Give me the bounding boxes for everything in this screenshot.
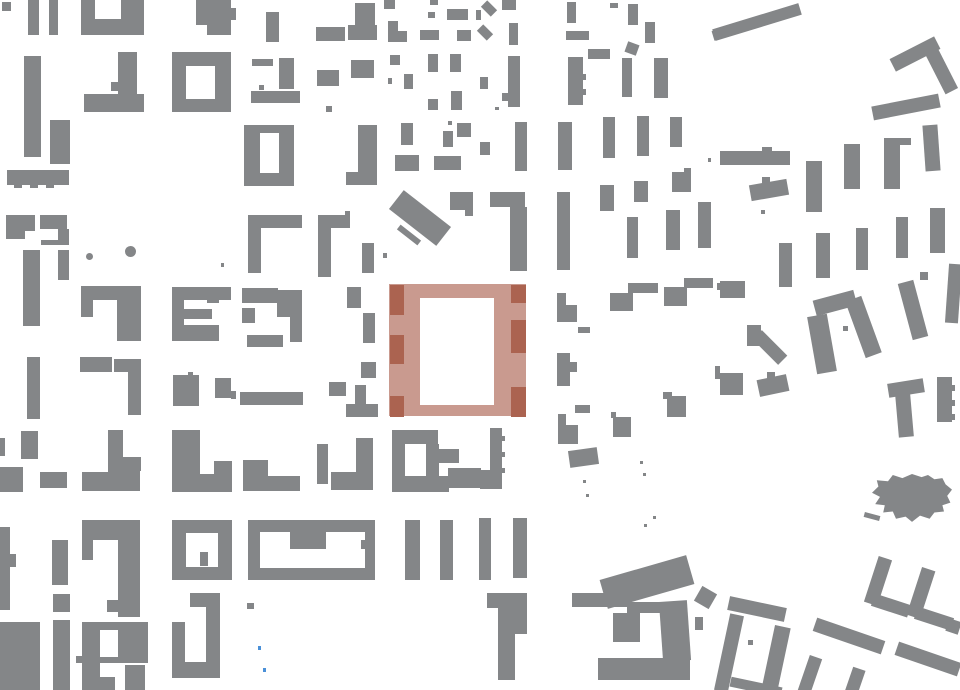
building-footprint [558, 414, 566, 425]
building-footprint [513, 518, 527, 578]
building-footprint [383, 253, 387, 258]
building-footprint [244, 173, 294, 186]
building-footprint [598, 658, 690, 680]
building-footprint [578, 327, 590, 333]
building-footprint [196, 0, 231, 25]
site-dark-block [511, 387, 526, 417]
building-footprint [231, 391, 236, 399]
building-footprint [644, 524, 647, 527]
building-footprint [509, 23, 518, 45]
building-footprint [395, 155, 419, 171]
building-footprint [251, 91, 300, 103]
building-footprint [567, 2, 576, 23]
building-footprint [172, 622, 185, 662]
building-footprint [317, 444, 328, 484]
building-footprint [14, 185, 22, 188]
building-footprint [945, 618, 960, 634]
building-footprint [952, 400, 955, 406]
building-footprint [557, 353, 570, 386]
building-footprint [922, 125, 940, 172]
building-footprint [515, 122, 527, 171]
building-footprint [318, 215, 350, 228]
building-footprint [440, 520, 453, 580]
building-footprint [434, 156, 461, 170]
building-footprint [392, 476, 449, 492]
building-footprint [231, 8, 236, 20]
map-marker-dot [258, 646, 261, 650]
building-footprint [351, 60, 374, 78]
building-footprint [392, 430, 438, 444]
building-footprint [81, 300, 93, 317]
building-footprint [570, 362, 577, 372]
building-footprint [807, 314, 837, 375]
building-footprint [477, 24, 493, 40]
building-footprint [266, 12, 279, 42]
building-footprint [844, 144, 860, 189]
building-footprint [720, 151, 790, 165]
building-footprint [23, 250, 40, 326]
building-footprint [502, 436, 505, 441]
building-footprint [76, 656, 82, 663]
building-footprint [443, 131, 453, 147]
site-dark-block [511, 285, 526, 303]
building-footprint [252, 59, 273, 66]
building-footprint [401, 123, 413, 145]
building-footprint [188, 372, 193, 375]
map-marker-dot [263, 668, 266, 672]
building-footprint [28, 0, 39, 35]
building-footprint [117, 300, 141, 341]
building-footprint [457, 30, 471, 41]
building-footprint [53, 594, 70, 612]
building-footprint [0, 527, 10, 610]
building-footprint [508, 56, 520, 107]
building-footprint [172, 300, 184, 341]
building-footprint [430, 0, 438, 5]
building-footprint [361, 540, 366, 549]
building-footprint [628, 283, 658, 293]
building-footprint [259, 85, 264, 90]
building-footprint [856, 228, 868, 270]
site-courtyard [420, 298, 494, 405]
building-footprint [52, 540, 68, 585]
building-footprint [761, 210, 765, 214]
building-footprint [41, 240, 69, 245]
building-footprint [242, 288, 278, 303]
building-footprint [588, 49, 610, 59]
building-footprint [481, 0, 497, 16]
round-building [125, 246, 136, 257]
building-footprint [465, 210, 473, 216]
building-footprint [356, 438, 373, 490]
building-footprint [107, 600, 118, 612]
building-footprint [46, 185, 54, 188]
building-footprint [279, 58, 294, 89]
building-footprint [610, 3, 618, 8]
building-footprint [476, 10, 481, 20]
building-footprint [937, 377, 952, 422]
building-footprint [242, 308, 255, 323]
building-footprint [843, 326, 848, 331]
building-footprint [557, 293, 566, 305]
building-footprint [557, 305, 577, 322]
building-footprint [653, 516, 656, 519]
building-footprint [568, 447, 599, 468]
building-footprint [243, 460, 268, 477]
building-footprint [6, 231, 25, 239]
building-footprint [81, 19, 144, 35]
building-footprint [347, 287, 361, 308]
building-footprint [172, 430, 200, 492]
building-footprint [895, 393, 914, 437]
building-footprint [654, 58, 668, 98]
building-footprint [207, 25, 231, 35]
building-footprint [118, 540, 140, 617]
building-footprint [447, 9, 468, 20]
building-footprint [922, 42, 958, 95]
building-footprint [428, 12, 435, 18]
building-footprint [659, 600, 691, 662]
building-footprint [720, 373, 743, 395]
building-footprint [111, 82, 120, 91]
building-footprint [207, 298, 219, 303]
building-footprint [695, 617, 703, 630]
building-footprint [450, 192, 473, 210]
building-footprint [762, 147, 772, 152]
building-footprint [895, 642, 960, 677]
building-footprint [448, 468, 481, 488]
building-footprint [184, 325, 219, 341]
building-footprint [277, 290, 302, 317]
building-footprint [664, 287, 687, 306]
building-footprint [439, 449, 459, 463]
building-footprint [900, 138, 911, 145]
building-footprint [348, 25, 377, 40]
building-footprint [244, 133, 260, 173]
building-footprint [244, 125, 294, 133]
building-footprint [329, 382, 346, 396]
building-footprint [316, 27, 345, 41]
building-footprint [480, 142, 490, 155]
building-footprint [326, 106, 332, 112]
building-footprint [670, 117, 682, 147]
building-footprint [600, 185, 614, 211]
building-footprint [634, 181, 648, 202]
building-footprint [123, 462, 140, 473]
building-footprint [753, 330, 788, 365]
building-footprint [247, 335, 283, 347]
building-footprint [694, 586, 717, 609]
building-footprint [358, 125, 377, 185]
building-footprint [331, 472, 357, 490]
building-footprint [128, 372, 141, 415]
building-footprint [172, 287, 231, 300]
building-footprint [575, 405, 590, 413]
building-footprint [172, 662, 207, 678]
building-footprint [214, 461, 232, 475]
building-footprint [363, 313, 375, 343]
building-footprint [345, 211, 350, 215]
building-footprint [355, 3, 375, 25]
building-footprint [82, 540, 93, 560]
building-footprint [568, 57, 583, 105]
building-footprint [82, 520, 140, 540]
building-footprint [0, 467, 23, 492]
building-footprint [952, 414, 955, 420]
building-footprint [388, 31, 407, 42]
building-footprint [797, 655, 822, 690]
building-footprint [428, 99, 438, 110]
building-footprint [317, 70, 339, 86]
building-footprint [248, 215, 302, 228]
site-dark-block [390, 396, 404, 417]
building-footprint [118, 52, 137, 94]
building-footprint [952, 385, 955, 391]
building-footprint [184, 309, 212, 319]
building-footprint [498, 634, 515, 680]
building-footprint [871, 94, 940, 121]
building-footprint [816, 233, 830, 278]
building-footprint [930, 208, 945, 253]
building-footprint [420, 30, 439, 40]
building-footprint [843, 667, 865, 690]
building-footprint [640, 461, 643, 464]
building-footprint [586, 494, 589, 497]
building-footprint [172, 520, 232, 533]
building-footprint [243, 476, 300, 491]
building-footprint [645, 22, 655, 43]
building-footprint [761, 625, 790, 690]
building-footprint [498, 607, 527, 634]
building-footprint [622, 58, 632, 97]
building-footprint [748, 640, 753, 645]
building-footprint [566, 31, 589, 40]
building-footprint [426, 444, 439, 477]
building-footprint [457, 123, 471, 137]
building-footprint [361, 362, 376, 378]
building-footprint [240, 392, 303, 405]
building-footprint [53, 620, 70, 690]
building-footprint [558, 425, 578, 444]
building-footprint [684, 278, 713, 288]
building-footprint [490, 192, 525, 207]
building-footprint [720, 281, 745, 298]
building-footprint [502, 93, 508, 101]
building-footprint [712, 17, 761, 41]
building-footprint [920, 272, 928, 280]
building-footprint [125, 665, 145, 690]
building-footprint [279, 133, 294, 173]
building-footprint [813, 618, 886, 655]
building-footprint [572, 593, 630, 607]
building-footprint [487, 593, 527, 608]
building-footprint [637, 116, 649, 156]
building-footprint [495, 107, 499, 110]
site-dark-block [390, 285, 404, 315]
building-footprint [82, 663, 100, 690]
building-footprint [627, 602, 662, 613]
building-footprint [2, 2, 11, 11]
building-footprint [610, 293, 633, 311]
building-footprint [384, 0, 395, 9]
building-footprint [583, 480, 586, 483]
building-footprint [318, 228, 331, 277]
building-footprint [200, 474, 232, 492]
building-footprint [114, 359, 141, 372]
building-footprint [583, 74, 586, 80]
building-footprint [80, 357, 112, 372]
building-footprint [510, 207, 527, 271]
building-footprint [643, 473, 646, 476]
building-footprint [221, 263, 224, 267]
building-footprint [40, 215, 67, 229]
building-footprint [557, 192, 570, 270]
building-footprint [884, 138, 900, 189]
building-footprint [248, 228, 261, 273]
building-footprint [428, 54, 438, 72]
building-footprint [215, 66, 231, 112]
building-footprint [84, 94, 144, 112]
tree-canopy [872, 474, 952, 526]
building-footprint [864, 512, 881, 521]
building-footprint [50, 120, 70, 164]
building-footprint [346, 172, 358, 185]
building-footprint [0, 438, 5, 456]
building-footprint [845, 296, 881, 358]
building-footprint [10, 554, 16, 567]
building-footprint [173, 375, 199, 406]
building-footprint [81, 286, 141, 300]
building-footprint [172, 66, 186, 112]
figure-ground-map [0, 0, 960, 690]
building-footprint [480, 470, 502, 489]
courtyard-cutout [100, 630, 118, 657]
building-footprint [603, 117, 615, 158]
building-footprint [172, 52, 231, 66]
building-footprint [502, 0, 516, 10]
building-footprint [206, 593, 220, 678]
building-footprint [215, 378, 231, 398]
building-footprint [450, 54, 461, 72]
building-footprint [871, 593, 911, 617]
building-footprint [30, 185, 38, 188]
building-footprint [346, 404, 378, 417]
building-footprint [121, 0, 144, 19]
building-footprint [613, 417, 631, 437]
building-footprint [100, 677, 115, 690]
building-footprint [806, 161, 822, 212]
building-footprint [96, 533, 107, 540]
building-footprint [708, 158, 711, 162]
building-footprint [779, 243, 792, 287]
building-footprint [672, 172, 691, 192]
building-footprint [624, 41, 639, 55]
site-dark-block [511, 320, 526, 353]
building-footprint [945, 264, 960, 324]
building-footprint [290, 532, 326, 549]
building-footprint [27, 357, 40, 419]
building-footprint [247, 603, 254, 609]
building-footprint [502, 468, 505, 473]
building-footprint [666, 210, 680, 250]
building-footprint [480, 77, 488, 89]
building-footprint [583, 89, 586, 95]
building-footprint [21, 431, 38, 459]
building-footprint [81, 0, 95, 19]
building-footprint [290, 315, 302, 342]
building-footprint [627, 217, 638, 258]
building-footprint [405, 520, 420, 580]
building-footprint [40, 472, 67, 488]
building-footprint [767, 372, 775, 379]
building-footprint [479, 518, 491, 580]
building-footprint [186, 99, 215, 112]
building-footprint [6, 215, 35, 231]
building-footprint [49, 0, 58, 35]
building-footprint [390, 55, 400, 65]
round-building [86, 253, 93, 260]
building-footprint [24, 56, 41, 157]
building-footprint [898, 280, 928, 340]
building-footprint [698, 202, 711, 248]
building-footprint [448, 121, 452, 125]
building-footprint [248, 568, 375, 580]
building-footprint [613, 613, 640, 642]
building-footprint [404, 74, 413, 89]
building-footprint [248, 520, 375, 532]
building-footprint [628, 4, 638, 25]
building-footprint [388, 78, 392, 84]
building-footprint [762, 177, 770, 183]
building-footprint [558, 122, 572, 170]
building-footprint [82, 472, 140, 491]
site-dark-block [390, 335, 404, 364]
building-footprint [190, 593, 207, 607]
building-footprint [451, 91, 462, 110]
building-footprint [200, 552, 208, 566]
building-footprint [667, 396, 686, 417]
building-footprint [502, 452, 505, 457]
building-footprint [172, 567, 232, 580]
building-footprint [389, 190, 451, 246]
building-footprint [58, 250, 69, 280]
building-footprint [362, 243, 374, 273]
building-footprint [896, 217, 908, 258]
building-footprint [7, 170, 69, 185]
building-footprint [0, 622, 40, 690]
